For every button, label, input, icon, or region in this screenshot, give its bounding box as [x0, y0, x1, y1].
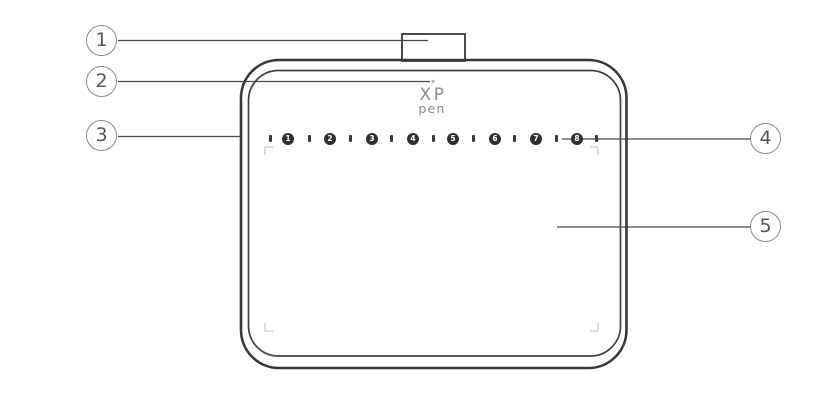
- express-key-2: 2: [324, 133, 336, 145]
- callout-1-badge: 1: [86, 25, 117, 56]
- key-row-tick-8: [555, 135, 558, 142]
- tablet-line-art: [0, 0, 840, 413]
- callout-3-badge: 3: [86, 120, 117, 151]
- key-row-tick-6: [472, 135, 475, 142]
- callout-3-label: 3: [95, 126, 107, 145]
- express-key-5: 5: [447, 133, 459, 145]
- xppen-logo-pen: pen: [402, 103, 462, 115]
- callout-2-label: 2: [95, 72, 107, 91]
- device-diagram-canvas: XP pen 1 2 3 4 5 6 7 8 1 2 3 4 5: [0, 0, 840, 413]
- active-area-corner-top-right: [590, 147, 598, 155]
- indicator-light-dot: [431, 80, 434, 83]
- key-row-tick-7: [513, 135, 516, 142]
- callout-4-badge: 4: [750, 123, 781, 154]
- express-key-4: 4: [407, 133, 419, 145]
- callout-4-label: 4: [759, 129, 771, 148]
- callout-1-label: 1: [95, 31, 107, 50]
- express-key-8: 8: [571, 133, 583, 145]
- active-area-corner-bottom-right: [590, 323, 598, 331]
- key-row-tick-4: [390, 135, 393, 142]
- express-key-7: 7: [530, 133, 542, 145]
- key-row-tick-2: [308, 135, 311, 142]
- express-key-6: 6: [489, 133, 501, 145]
- key-row-tick-3: [349, 135, 352, 142]
- callout-5-label: 5: [759, 217, 771, 236]
- xppen-logo: XP pen: [402, 88, 462, 115]
- key-row-tick-5: [432, 135, 435, 142]
- key-row-tick-1: [269, 135, 272, 142]
- callout-5-badge: 5: [750, 211, 781, 242]
- active-area-corner-bottom-left: [265, 323, 273, 331]
- express-key-3: 3: [366, 133, 378, 145]
- key-row-tick-9: [595, 135, 598, 142]
- callout-2-badge: 2: [86, 66, 117, 97]
- express-key-1: 1: [282, 133, 294, 145]
- active-area-corner-top-left: [265, 147, 273, 155]
- top-slot-button: [402, 34, 465, 61]
